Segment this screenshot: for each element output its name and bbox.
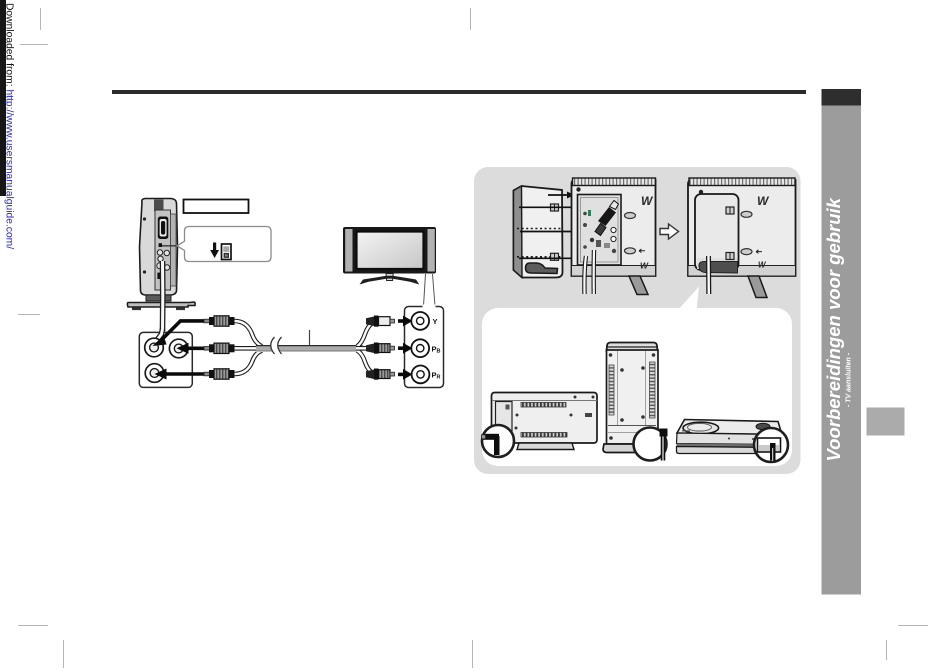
svg-text:Downloaded from: http://www.us: Downloaded from: http://www.usersmanualg…	[4, 3, 15, 249]
svg-text:▬▬: ▬▬	[682, 428, 690, 433]
svg-text:- TV aansluiten -: - TV aansluiten -	[846, 352, 853, 407]
svg-text:W: W	[640, 261, 649, 271]
svg-text:Voorbereidingen voor gebruik: Voorbereidingen voor gebruik	[823, 196, 844, 461]
svg-text:W: W	[641, 194, 654, 208]
svg-text:W: W	[757, 194, 770, 208]
svg-text:Y: Y	[433, 317, 438, 326]
